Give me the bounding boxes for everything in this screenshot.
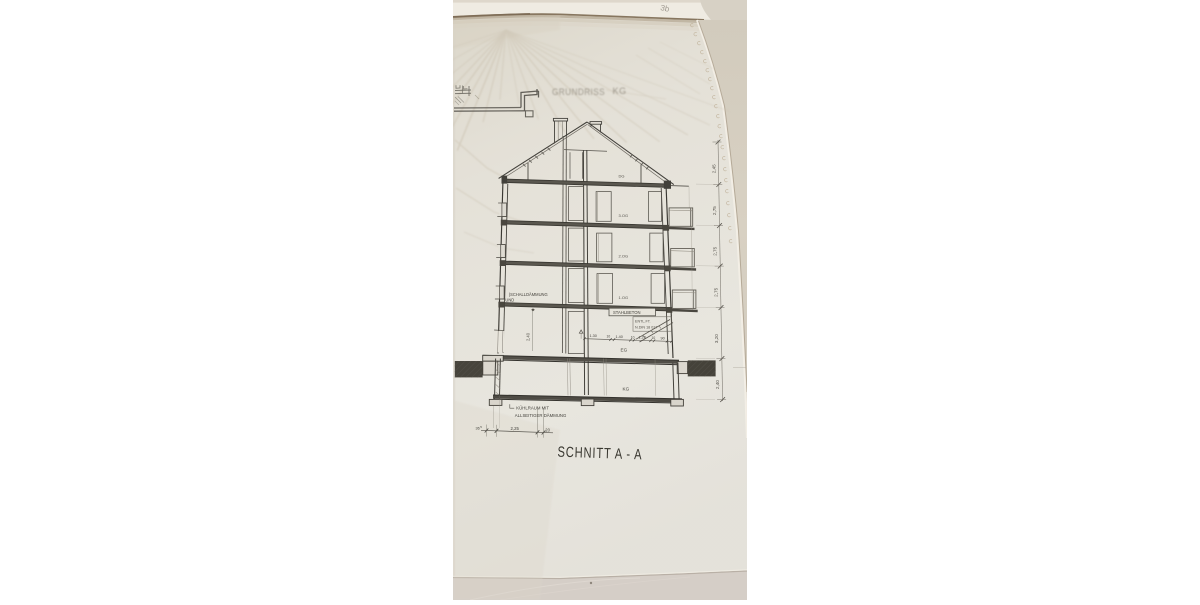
svg-text:20: 20 [545,427,550,432]
svg-text:2,75: 2,75 [713,287,718,296]
svg-text:10: 10 [631,335,635,339]
svg-text:1.30: 1.30 [590,334,597,338]
svg-text:10: 10 [607,335,611,339]
svg-text:36: 36 [476,426,480,430]
svg-text:2,25: 2,25 [511,426,520,431]
svg-text:2,45: 2,45 [711,164,716,173]
svg-text:2.OG: 2.OG [619,253,629,258]
svg-text:EG: EG [621,348,628,353]
svg-text:10: 10 [652,336,656,340]
svg-text:KÜHLRAUM MIT: KÜHLRAUM MIT [516,406,549,411]
svg-text:1.40: 1.40 [616,335,623,339]
svg-text:ENTL.FT.: ENTL.FT. [635,319,651,323]
svg-text:SCHNITT A - A: SCHNITT A - A [557,445,642,464]
svg-text:DG: DG [619,174,625,179]
svg-text:UND: UND [505,298,514,303]
svg-text:KG: KG [613,86,627,96]
svg-text:STAHLBETON: STAHLBETON [613,310,641,315]
svg-text:2,75: 2,75 [713,246,718,255]
svg-text:ALLSEITIGER DÄMMUNG: ALLSEITIGER DÄMMUNG [515,413,567,418]
svg-text:1.OG: 1.OG [619,295,629,300]
svg-text:KG: KG [623,387,630,392]
svg-text:2,40: 2,40 [715,380,720,389]
svg-text:3.OG: 3.OG [619,213,629,218]
svg-text:GRUNDRISS: GRUNDRISS [552,87,605,97]
svg-text:(SCHALLDÄMMUNG: (SCHALLDÄMMUNG [509,292,548,297]
svg-text:90: 90 [661,337,665,341]
svg-text:2,40: 2,40 [526,332,531,341]
svg-text:3,20: 3,20 [714,334,719,343]
svg-text:2,75: 2,75 [712,206,717,215]
